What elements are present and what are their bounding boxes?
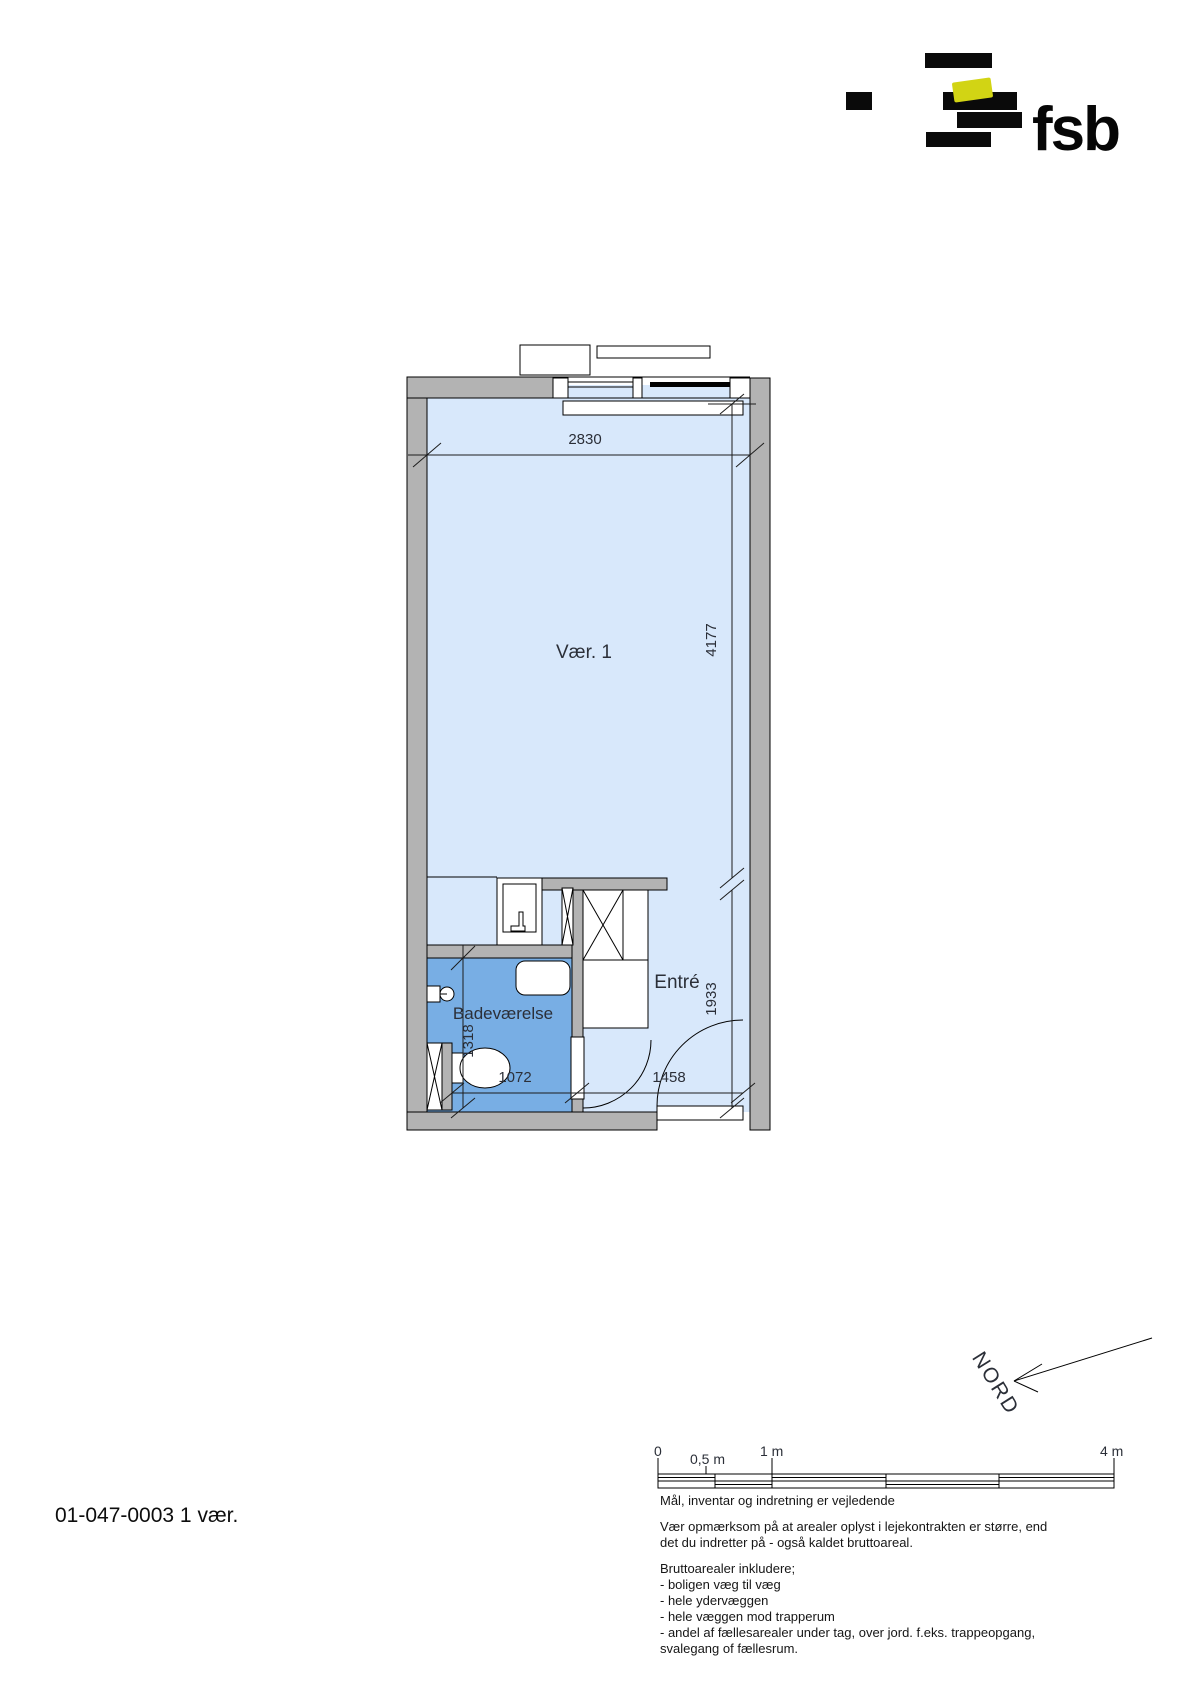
bathroom-door-leaf <box>571 1037 584 1099</box>
dim-bathroom-depth: 1318 <box>460 1024 477 1057</box>
scale-label-4: 4 m <box>1100 1443 1123 1459</box>
logo-brand-text: fsb <box>1032 99 1119 161</box>
wall-bathroom-right <box>572 890 583 1037</box>
logo-block-top <box>925 53 992 68</box>
window-post <box>553 378 568 398</box>
logo-block-left <box>846 92 872 110</box>
wall-left <box>407 377 427 1130</box>
scale-label-05: 0,5 m <box>690 1451 725 1467</box>
dim-bathroom-width: 1072 <box>498 1069 531 1086</box>
logo-block-bottom <box>926 132 991 147</box>
notes-block: Mål, inventar og indretning er vejledend… <box>660 1493 1140 1657</box>
window-post <box>633 378 642 398</box>
note-line: - hele ydervæggen <box>660 1593 1140 1609</box>
window-sill <box>563 401 743 415</box>
note-line: det du indretter på - også kaldet brutto… <box>660 1535 1140 1551</box>
scale-bar: 0 0,5 m 1 m 4 m <box>640 1435 1140 1495</box>
note-line: Mål, inventar og indretning er vejledend… <box>660 1493 1140 1509</box>
bathroom-label: Badeværelse <box>453 1004 553 1023</box>
room-label: Vær. 1 <box>556 642 612 663</box>
bathtub <box>516 961 570 995</box>
dim-entry-width: 1458 <box>652 1069 685 1086</box>
note-line: svalegang of fællesrum. <box>660 1641 1140 1657</box>
wall-right <box>750 378 770 1130</box>
scale-label-0: 0 <box>654 1443 662 1459</box>
plan-id: 01-047-0003 1 vær. <box>55 1504 238 1528</box>
wall-bathroom-right-stub <box>572 1098 583 1112</box>
dim-room-width: 2830 <box>568 431 601 448</box>
note-line: Bruttoarealer inkludere; <box>660 1561 1140 1577</box>
wall-entry-beam <box>542 878 667 890</box>
floorplan-drawing: 2830 4177 1933 1318 1072 1458 Vær. 1 Bad… <box>395 335 795 1145</box>
note-line: - hele væggen mod trapperum <box>660 1609 1140 1625</box>
window-post <box>730 378 750 398</box>
entry-label: Entré <box>654 972 699 993</box>
scale-bar-body <box>658 1474 1114 1488</box>
entry-closets <box>583 890 648 1028</box>
note-line: - boligen væg til væg <box>660 1577 1140 1593</box>
scale-ticks <box>658 1458 1114 1474</box>
logo-block-lower <box>957 112 1022 128</box>
dim-room-depth: 4177 <box>703 623 720 656</box>
entry-door-leaf <box>657 1106 743 1120</box>
floorplan-page: fsb <box>0 0 1200 1697</box>
north-compass: NORD <box>930 1325 1170 1435</box>
fsb-logo: fsb <box>840 45 1170 160</box>
north-arrow <box>1014 1338 1152 1392</box>
north-label: NORD <box>967 1348 1024 1419</box>
note-line: Vær opmærksom på at arealer oplyst i lej… <box>660 1519 1140 1535</box>
dim-entry-depth: 1933 <box>703 982 720 1015</box>
wall-top <box>407 377 553 398</box>
scale-label-1: 1 m <box>760 1443 783 1459</box>
wall-bathroom-top <box>427 945 583 958</box>
window-glazing-dark <box>650 382 730 387</box>
wall-bottom <box>407 1112 657 1130</box>
washbasin <box>427 986 440 1002</box>
closet-unit <box>583 890 648 1028</box>
note-line: - andel af fællesarealer under tag, over… <box>660 1625 1140 1641</box>
exterior-window-detail <box>520 345 710 375</box>
